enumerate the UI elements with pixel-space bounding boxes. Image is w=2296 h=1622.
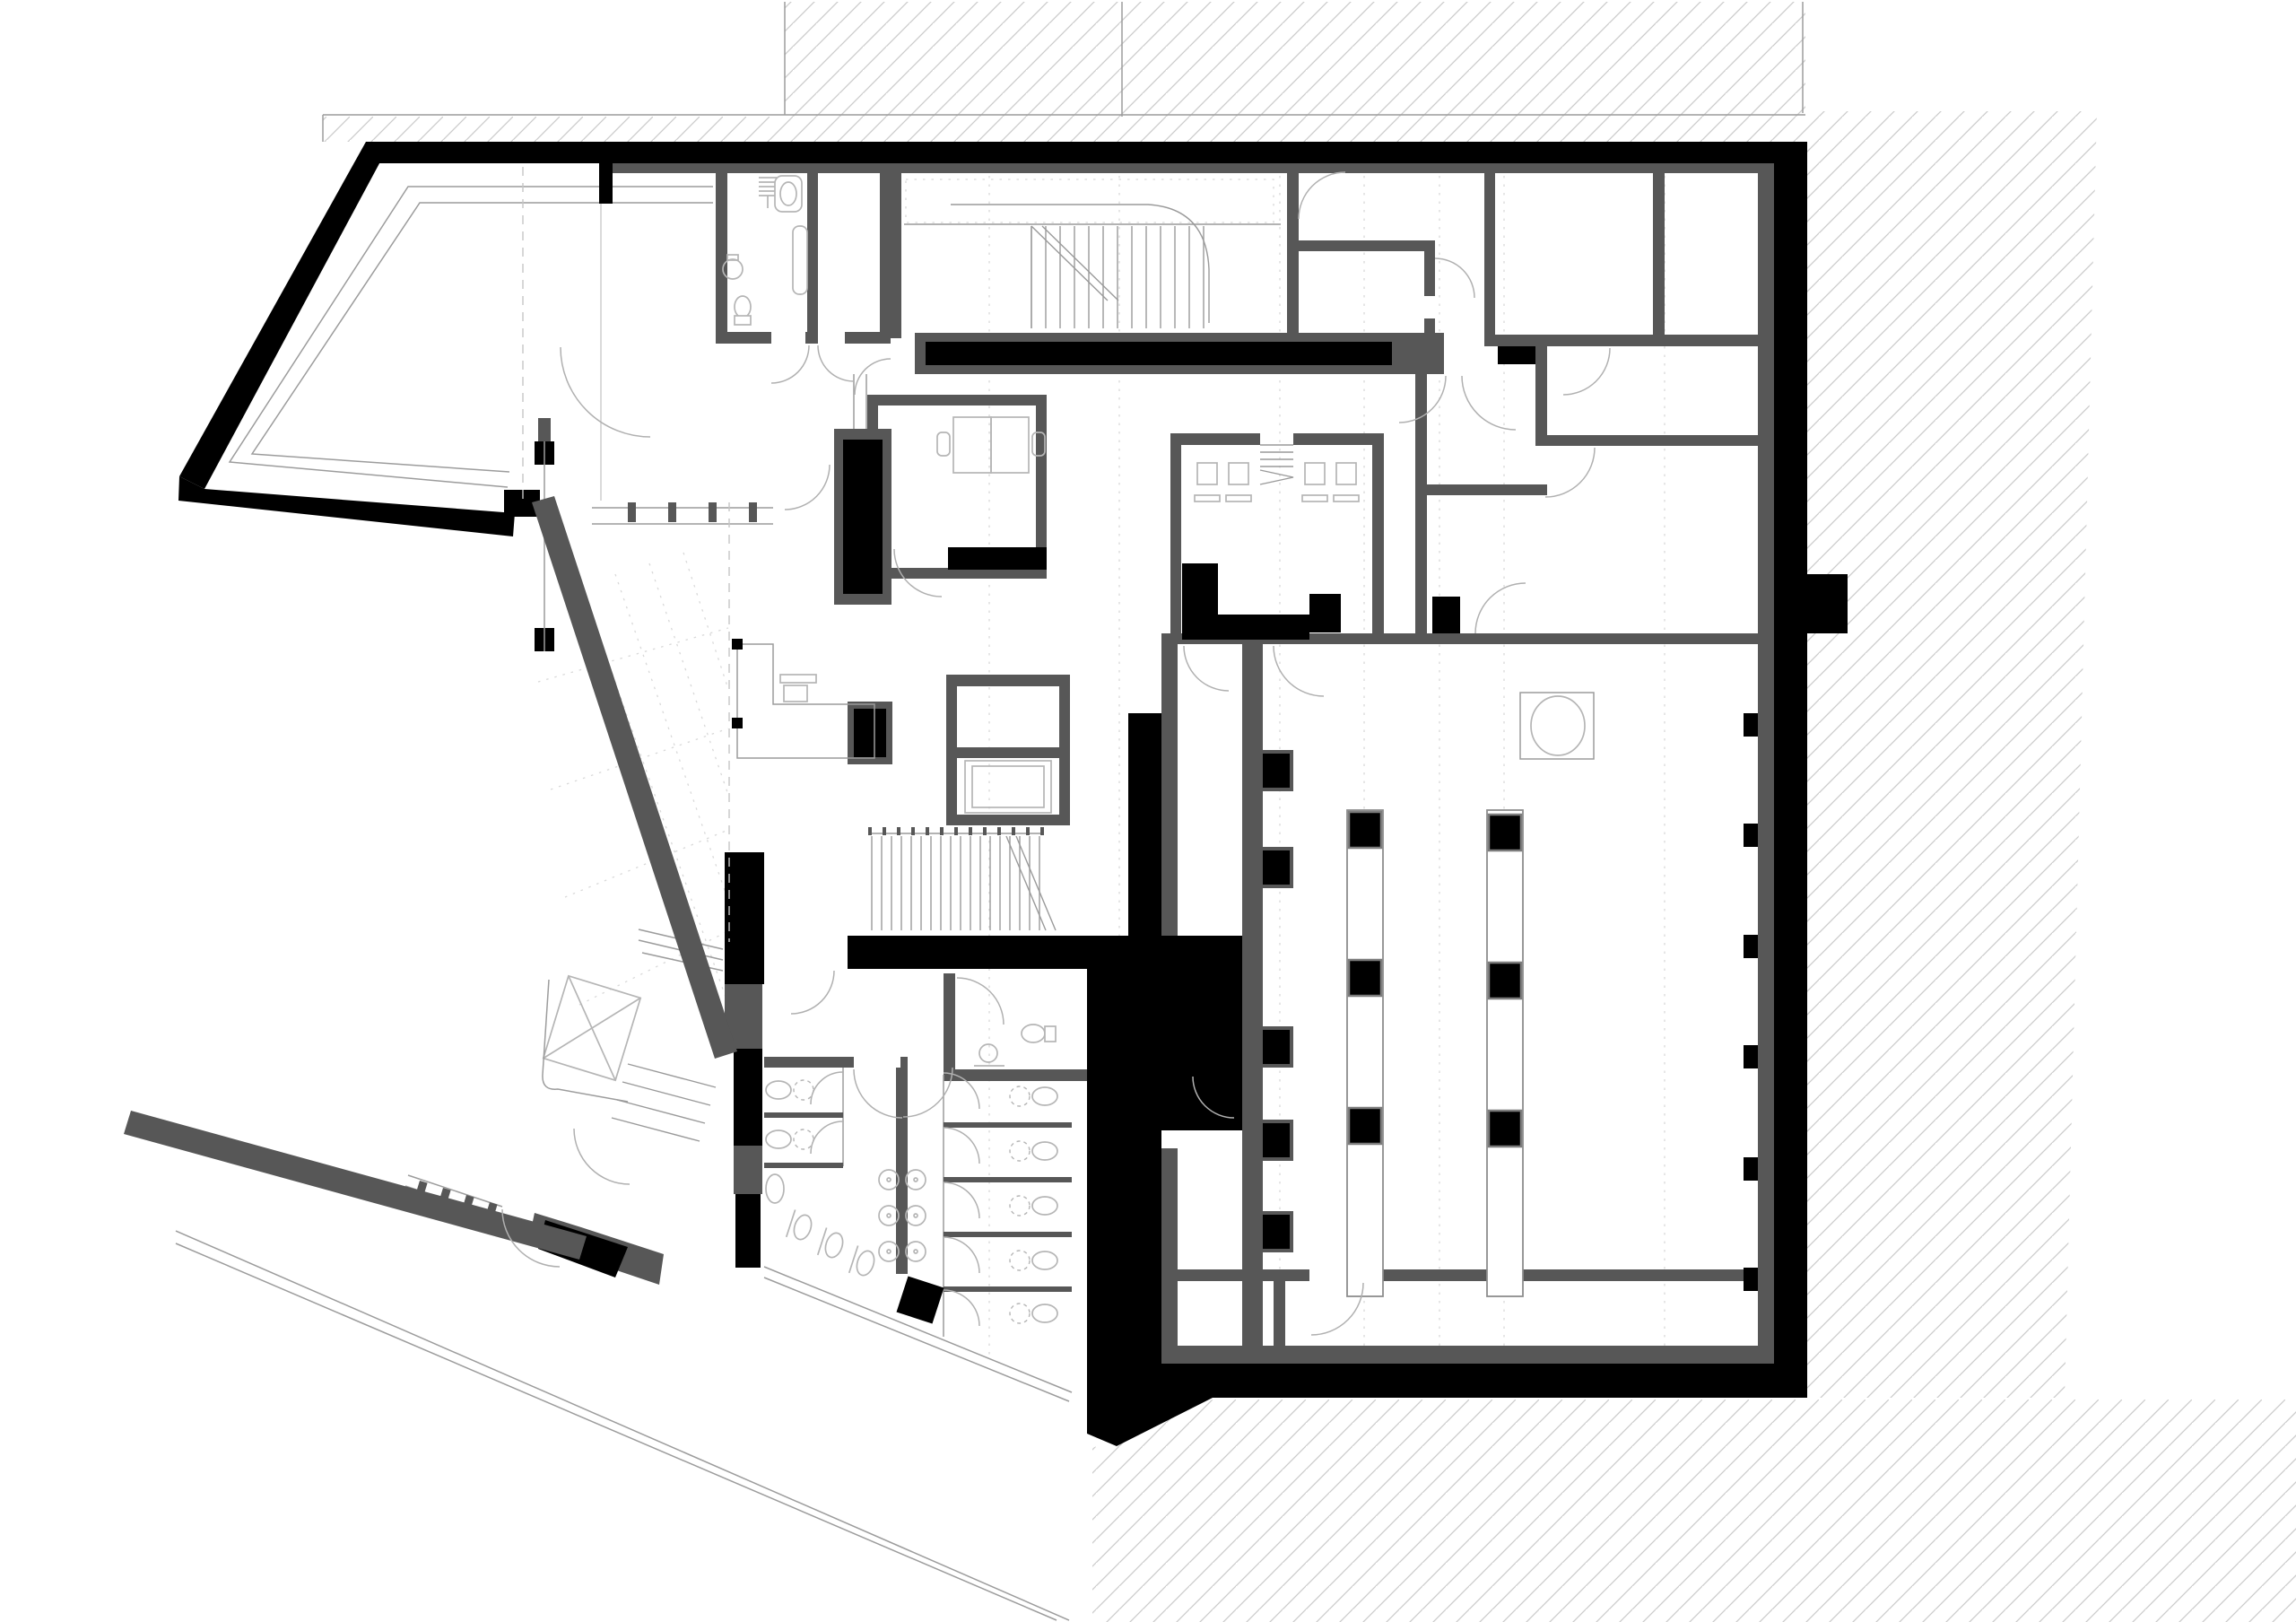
baluster [1026,827,1030,835]
rooms-s-wall [1484,335,1774,346]
hallrooms-n-wall-b [1361,1269,1774,1281]
terrace-parapet-outer [230,187,713,487]
hallrooms-n-wall-a [1161,1269,1309,1281]
wc-icon [766,1081,791,1099]
wc-n-wall-b [900,1057,908,1068]
workstation-room [1195,445,1359,501]
radiator-niche-1 [1498,346,1541,364]
wc-seat-dashed [1010,1196,1030,1216]
bathtub-icon [793,226,807,294]
counter-post [732,639,743,650]
paving-line [649,563,728,795]
retaining-wall [124,1111,587,1260]
lift-closet-e [1059,675,1070,747]
hallrooms-divider [1274,1281,1285,1346]
sink-icon [979,1044,997,1062]
window-mullion [628,502,636,522]
angled-column [897,1277,944,1324]
stair1-w-wall [891,173,901,338]
elevator-cab-outer [965,761,1051,813]
table-column-block [1489,963,1521,998]
small-room-e-wall [880,173,891,338]
counter-shelf [780,675,816,683]
stall-partition [764,1163,843,1168]
wc-icon [1032,1142,1057,1160]
stall-door [811,1072,843,1104]
north-lining [613,163,1774,173]
wardrobe-black-band [926,342,1392,365]
wc-seat-dashed [1010,1251,1030,1270]
toilet-tank [735,316,751,325]
window-mullion [749,502,757,522]
basin-drain [914,1178,918,1182]
toilets-right [944,1073,1072,1337]
radiator-niche-2 [1432,597,1460,633]
wc-west-gray-b [734,1146,762,1194]
baluster [911,827,915,835]
pilaster-black [1263,1030,1290,1064]
site-hatch-bottom [1092,1400,2296,1622]
baluster [954,827,958,835]
pilaster-black [1263,754,1290,788]
inner-room-n-wall [1289,240,1435,251]
window-mullion [709,502,717,522]
staircase-upper [904,179,1281,328]
stall-door [944,1290,979,1326]
wc-west-wall-c [735,1194,761,1268]
stall-partition [944,1122,1072,1128]
lift-shaft-n [946,747,1070,758]
table-column-block [1489,1111,1521,1147]
basin-icon [906,1242,926,1261]
awc-w-wall [944,973,955,1081]
monitor-icon [1197,463,1217,484]
mini-steps [1260,445,1293,467]
wc-seat-dashed [1010,1086,1030,1106]
monitor-icon [1305,463,1325,484]
site-diagonal-wall [532,496,737,1059]
pilaster-black [1263,1123,1290,1157]
keyboard-icon [1334,495,1359,501]
platform-lift [544,976,640,1080]
basin-drain [914,1214,918,1217]
baluster [868,827,872,835]
wall-tie-tick [1744,935,1758,958]
round-table [1531,696,1585,755]
counter-post [732,718,743,728]
pier2-black [854,709,886,757]
basin-drain [887,1250,891,1253]
midright-h-wall-1 [1535,435,1774,446]
ws-black-L-h [1182,615,1309,640]
floor-plan-drawing [0,0,2296,1622]
wall-wc-icon [775,176,802,212]
hall-round-table [1520,693,1594,759]
ws-n-wall-b [1293,433,1384,445]
paving-line [683,553,728,689]
floor-plan-page [0,0,2296,1622]
toilet-icon [735,296,751,318]
wc-seat-dashed [1010,1141,1030,1161]
band-s-wall-a [716,332,771,344]
baluster [1040,827,1044,835]
slab-e-lining [1161,1148,1178,1364]
stall-door [944,1128,979,1164]
pilaster-black [1263,1215,1290,1249]
inner-room-e-wall-a [1424,251,1435,296]
core-slab [1087,1130,1161,1364]
monitor-icon [1229,463,1248,484]
wall-tie-tick [1744,1157,1758,1181]
ws-w-wall [1170,445,1181,640]
toilet-tank [1045,1026,1056,1042]
terrace [178,142,713,536]
site-hatch-right-band [1807,111,2097,1398]
baluster [983,827,987,835]
baluster [1012,827,1015,835]
staircase-main [868,827,1056,930]
basin-drain [914,1250,918,1253]
wc-center-partition [896,1068,908,1274]
table-column-block [1349,1108,1381,1144]
wall-tie-tick [1744,1268,1758,1291]
lift-closet-n [946,675,1070,686]
band-s-wall-b [805,332,816,344]
wc-icon [1032,1304,1057,1322]
site-hatch-top-strip [323,117,1807,142]
midright-w-wall [1415,347,1427,644]
baluster [997,827,1001,835]
stall-partition [944,1286,1072,1292]
stair1-e-wall [1287,170,1299,335]
wc-n-wall-a [764,1057,854,1068]
wall-tie-tick [1744,824,1758,847]
midright-v-wall [1535,346,1547,446]
south-wall [1213,1364,1807,1398]
wc-seat-dashed [794,1080,813,1100]
stall-partition [944,1177,1072,1182]
wc-west-wall-b [734,1049,762,1146]
baluster [926,827,929,835]
mini-steps-zigzag [1260,470,1293,484]
ws-e-wall [1372,445,1384,640]
keyboard-icon [1302,495,1327,501]
hall-table-strip [1347,810,1383,1296]
stall-door [944,1237,979,1273]
elevator [965,761,1051,813]
window-mullion [668,502,676,522]
lift-closet-w [946,686,957,747]
midright-h-wall-2 [1415,484,1547,495]
pier1-black [843,440,883,594]
bathroom [723,176,807,325]
table-column-block [1349,960,1381,996]
urinal-icon [849,1245,878,1279]
wall-tie-tick [1744,1045,1758,1068]
stall-partition [764,1112,843,1118]
terrace-west-wall [179,142,391,489]
east-wall-bump [1807,574,1848,633]
urinal-icon [818,1227,847,1261]
wc-icon [1032,1197,1057,1215]
toilet-icon [1022,1025,1045,1042]
baluster [969,827,972,835]
ramp-handrail [543,980,628,1102]
stall-partition [944,1232,1072,1237]
ws-black-pier [1309,594,1341,632]
wc-seat-dashed [1010,1304,1030,1323]
corridor-w-lining [1161,633,1178,936]
east-lining [1758,173,1774,1346]
keyboard-icon [1195,495,1220,501]
stall-door [944,1182,979,1218]
table-column-block [1489,815,1521,850]
baluster [883,827,886,835]
stair1-rail-dotted [906,179,1274,222]
roomA-B-divider [1484,170,1495,346]
office-desks [937,417,1045,473]
east-wall [1774,163,1807,1398]
monitor-icon [1336,463,1356,484]
hall-table-strip [1487,810,1523,1296]
lift-shaft-s [946,815,1070,825]
site-hatch-top-patch [785,2,1805,117]
bathroom-w-wall [716,173,727,344]
hall-n-wall-right [1415,633,1774,644]
bathroom-e-wall [807,173,818,344]
wall-tie-tick [1744,713,1758,737]
desk-icon [991,417,1029,473]
ws-n-wall-a [1170,433,1260,445]
elevator-cab-inner [972,766,1044,807]
band-s-wall-c [845,332,891,344]
wc-west-wall-a [725,852,764,984]
west-glazing-stub [538,418,551,443]
wc-icon [1032,1087,1057,1105]
stall-door [811,1121,843,1154]
baluster [897,827,900,835]
urinal-icon [787,1209,815,1243]
keyboard-icon [1226,495,1251,501]
baluster [940,827,944,835]
wc-seat-dashed [794,1129,813,1149]
basin-drain [887,1178,891,1182]
shower-icon [759,178,777,208]
basin-icon [906,1170,926,1190]
core-block [1087,936,1247,1130]
north-wall-stub [599,163,613,204]
paving-line [538,628,728,682]
basin-icon [879,1206,899,1225]
roomB-C-divider [1653,170,1665,346]
desk-icon [953,417,991,473]
office-n-wall [878,395,1047,405]
core-upper-column [1128,713,1161,936]
wc-icon [1032,1251,1057,1269]
office-black-band [948,547,1047,570]
north-wall [366,142,1807,163]
sink-oval [766,1174,784,1203]
basin-icon [879,1170,899,1190]
terrace-south-wall [178,476,515,536]
reception-chair [784,685,807,702]
inner-room-e-wall-b [1424,318,1435,344]
pilaster-black [1263,850,1290,885]
accessible-wc [974,1025,1056,1066]
basin-icon [879,1242,899,1261]
wc-icon [766,1130,791,1148]
basin-icon [906,1206,926,1225]
chair-icon [937,432,950,456]
basin-drain [887,1214,891,1217]
table-column-block [1349,812,1381,848]
stair-main-break [1006,836,1056,930]
